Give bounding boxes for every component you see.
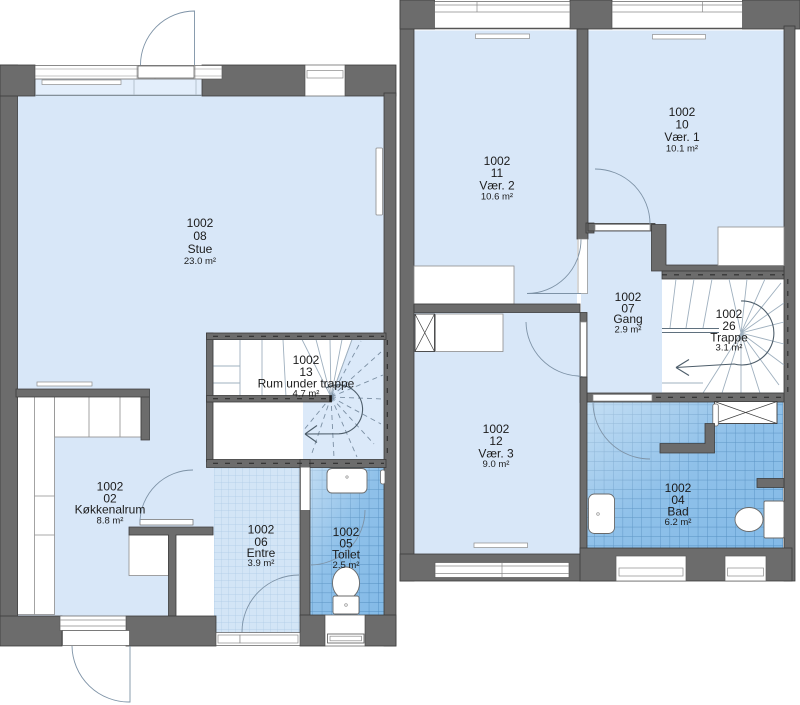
svg-text:1002: 1002 [187,216,214,230]
svg-text:2.9 m²: 2.9 m² [615,325,642,336]
svg-text:9.0 m²: 9.0 m² [483,459,510,470]
svg-text:10.1 m²: 10.1 m² [666,144,698,155]
svg-text:Køkkenalrum: Køkkenalrum [75,503,146,517]
svg-text:4.7 m²: 4.7 m² [293,389,320,400]
svg-text:3.1 m²: 3.1 m² [716,343,743,354]
svg-text:8.8 m²: 8.8 m² [97,516,124,527]
svg-text:3.9 m²: 3.9 m² [248,558,275,569]
svg-text:08: 08 [193,229,207,243]
svg-text:10.6 m²: 10.6 m² [481,192,513,203]
svg-text:6.2 m²: 6.2 m² [665,517,692,528]
svg-text:Stue: Stue [188,242,213,256]
svg-text:Vær. 1: Vær. 1 [664,130,700,144]
svg-text:23.0 m²: 23.0 m² [184,256,216,267]
svg-text:Vær. 2: Vær. 2 [479,179,515,193]
svg-text:2.5 m²: 2.5 m² [333,560,360,571]
